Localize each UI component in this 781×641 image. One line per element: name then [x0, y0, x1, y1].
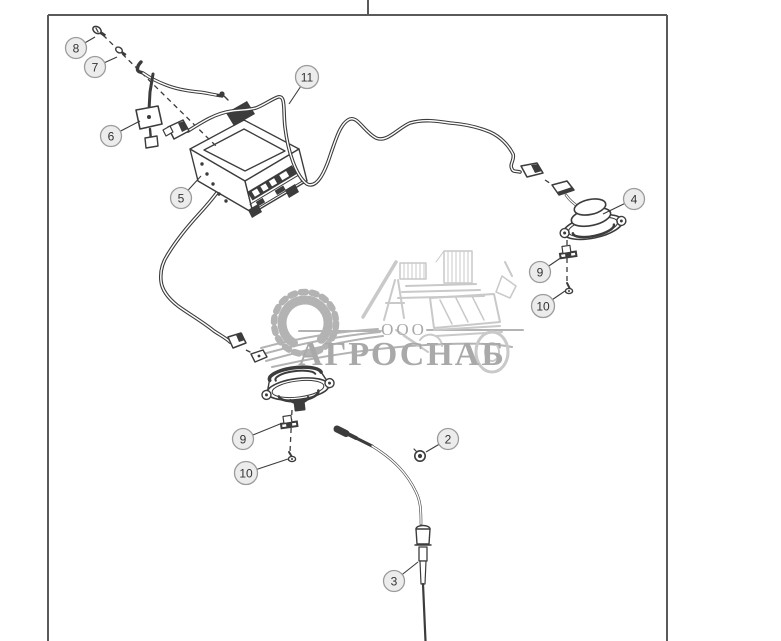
svg-text:5: 5 — [178, 192, 185, 206]
svg-text:7: 7 — [92, 61, 99, 75]
svg-text:8: 8 — [73, 42, 80, 56]
watermark-company-name: АГРОСНАБ — [298, 336, 506, 373]
svg-text:6: 6 — [108, 130, 115, 144]
callout-3: 3 — [384, 562, 419, 592]
svg-text:10: 10 — [536, 300, 550, 314]
svg-text:10: 10 — [239, 467, 253, 481]
speaker-connector-tab-left — [251, 350, 267, 362]
watermark: ООО АГРОСНАБ — [261, 251, 523, 373]
speaker-connector-right — [552, 181, 574, 195]
callout-2: 2 — [426, 429, 459, 453]
callout-9-left: 9 — [233, 424, 281, 450]
antenna-nut-drawing — [414, 449, 425, 461]
parts-diagram-canvas: ООО АГРОСНАБ — [0, 0, 781, 641]
wiring-harness-drawing — [163, 97, 543, 348]
svg-text:11: 11 — [301, 71, 314, 85]
harness-connector-left — [163, 120, 189, 139]
svg-text:2: 2 — [445, 433, 452, 447]
callout-10-right: 10 — [532, 291, 566, 318]
assembly-dashed-lines — [103, 35, 567, 452]
screw-7-drawing — [115, 46, 128, 57]
harness-connector-bottom — [228, 333, 246, 348]
callout-6: 6 — [101, 121, 141, 147]
svg-text:9: 9 — [240, 433, 247, 447]
harness-connector-right — [521, 163, 543, 177]
right-speaker-drawing — [552, 181, 628, 245]
screw-right-drawing — [565, 283, 572, 294]
svg-text:9: 9 — [537, 266, 544, 280]
diagram-frame — [48, 0, 667, 641]
clamp-left-drawing — [279, 414, 299, 429]
screw-8-drawing — [91, 25, 107, 39]
screw-left-drawing — [288, 452, 295, 462]
callout-8: 8 — [66, 37, 96, 59]
callout-11: 11 — [289, 66, 319, 105]
svg-text:3: 3 — [391, 575, 398, 589]
callout-7: 7 — [85, 57, 118, 78]
callout-5: 5 — [171, 176, 202, 209]
callout-10-left: 10 — [235, 459, 289, 485]
svg-text:4: 4 — [631, 193, 638, 207]
callout-9-right: 9 — [530, 257, 563, 283]
